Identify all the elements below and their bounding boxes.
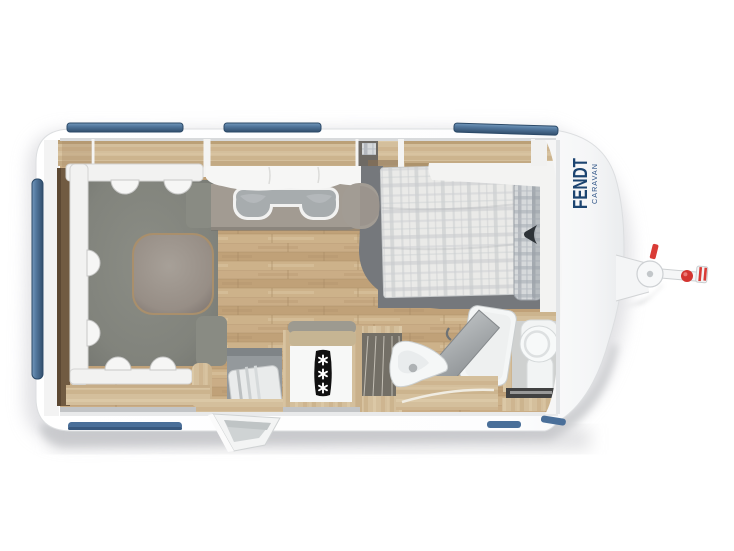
- svg-text:CARAVAN: CARAVAN: [592, 163, 599, 204]
- svg-text:FENDT: FENDT: [569, 158, 592, 209]
